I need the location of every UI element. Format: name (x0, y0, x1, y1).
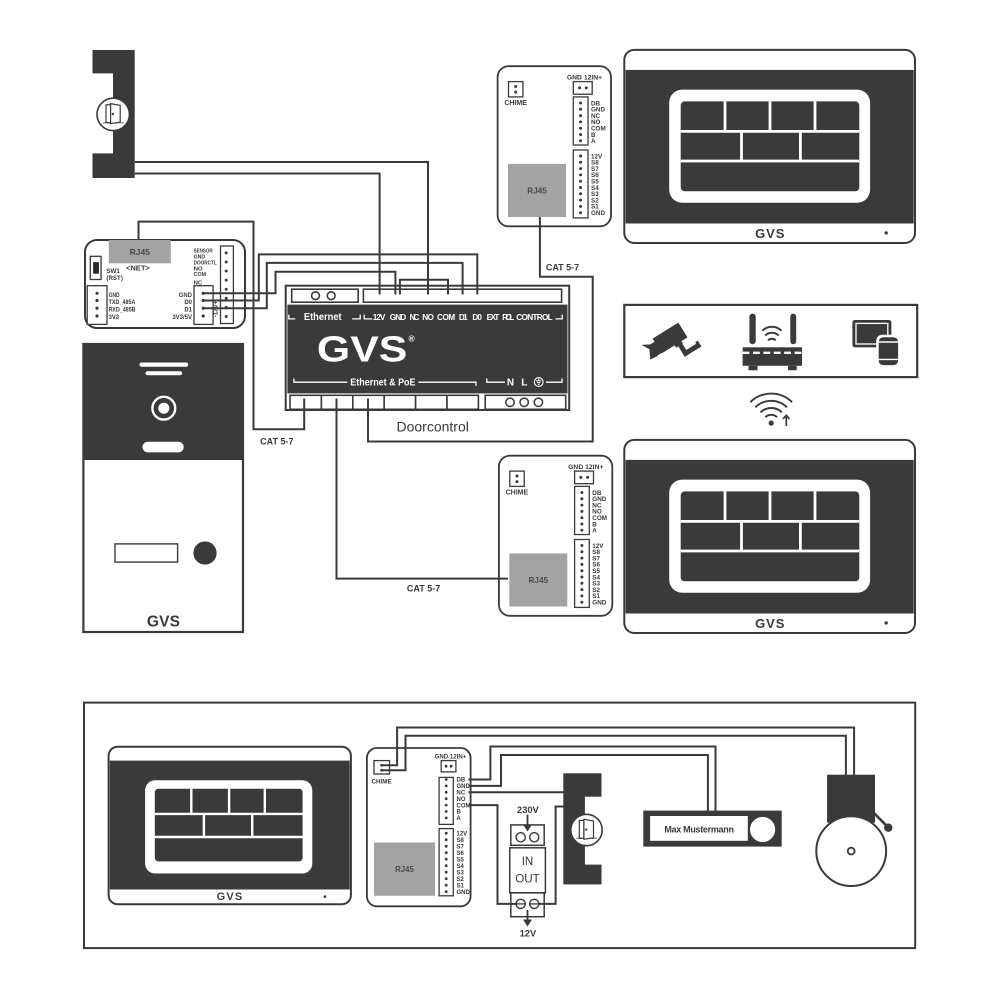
svg-text:ROL: ROL (502, 313, 514, 322)
svg-text:GND 12IN+: GND 12IN+ (567, 75, 602, 82)
svg-text:GVS: GVS (755, 616, 785, 631)
svg-text:RJ45: RJ45 (529, 576, 549, 585)
svg-text:GND: GND (179, 293, 193, 299)
svg-text:GND 12IN+: GND 12IN+ (435, 753, 467, 760)
svg-text:S4: S4 (457, 864, 465, 870)
svg-text:RJ45: RJ45 (130, 247, 151, 257)
svg-text:GVS: GVS (317, 330, 407, 370)
svg-text:COM: COM (457, 803, 471, 809)
svg-text:230V: 230V (517, 805, 540, 815)
svg-text:A: A (457, 816, 462, 822)
svg-text:D0: D0 (472, 313, 482, 322)
svg-text:COM: COM (194, 272, 207, 278)
svg-text:D1: D1 (459, 313, 468, 322)
svg-text:GND: GND (109, 293, 121, 299)
svg-text:S5: S5 (457, 857, 465, 863)
svg-text:GND: GND (457, 890, 471, 896)
svg-text:GVS: GVS (217, 891, 244, 903)
svg-text:CAT 5-7: CAT 5-7 (260, 436, 293, 446)
svg-text:GND: GND (591, 210, 605, 217)
svg-text:Max Mustermann: Max Mustermann (664, 825, 733, 835)
svg-text:N: N (507, 378, 514, 389)
svg-text:GVS: GVS (147, 614, 180, 631)
svg-text:Ethernet & PoE: Ethernet & PoE (350, 378, 415, 389)
svg-text:OUT: OUT (515, 873, 539, 886)
svg-text:RXD_485B: RXD_485B (109, 307, 136, 313)
svg-text:S1: S1 (457, 883, 465, 889)
svg-text:3V3: 3V3 (109, 315, 120, 321)
svg-text:<NET>: <NET> (126, 264, 150, 273)
svg-text:D0: D0 (184, 300, 192, 306)
svg-text:RJ45: RJ45 (395, 865, 414, 874)
svg-text:B: B (457, 810, 462, 816)
svg-text:DOORCTL: DOORCTL (194, 260, 218, 266)
svg-text:GND: GND (592, 600, 606, 607)
svg-text:3V3/5V: 3V3/5V (172, 315, 192, 321)
svg-text:L: L (521, 378, 527, 389)
svg-text:NC: NC (410, 313, 420, 322)
svg-text:NC: NC (457, 791, 466, 797)
svg-text:A: A (591, 138, 596, 145)
svg-text:CHIME: CHIME (504, 100, 527, 107)
svg-text:Ethernet: Ethernet (304, 312, 342, 323)
svg-text:GVS: GVS (755, 226, 785, 241)
svg-text:A: A (592, 528, 597, 535)
svg-text:IN: IN (522, 855, 534, 868)
svg-text:S3: S3 (457, 870, 465, 876)
svg-text:RJ45: RJ45 (527, 186, 547, 195)
svg-text:CONTROL: CONTROL (516, 313, 552, 322)
svg-text:S2: S2 (457, 877, 465, 883)
svg-text:CAT 5-7: CAT 5-7 (546, 263, 579, 273)
svg-text:SW1: SW1 (106, 268, 120, 275)
svg-text:D1: D1 (184, 307, 192, 313)
svg-text:12V: 12V (520, 928, 537, 938)
svg-text:COM: COM (437, 313, 455, 322)
svg-text:GND 12IN+: GND 12IN+ (568, 464, 603, 471)
svg-text:(RST): (RST) (106, 275, 123, 282)
svg-text:®: ® (409, 334, 416, 344)
svg-text:CHIME: CHIME (371, 779, 391, 786)
svg-text:CHIME: CHIME (506, 490, 529, 497)
svg-text:12V: 12V (457, 831, 468, 837)
svg-text:TXD_485A: TXD_485A (109, 300, 136, 306)
svg-text:S6: S6 (457, 851, 465, 857)
svg-text:CAT 5-7: CAT 5-7 (407, 583, 440, 593)
svg-text:NO: NO (422, 313, 434, 322)
svg-text:GND: GND (457, 784, 471, 790)
svg-text:12V: 12V (373, 313, 386, 322)
svg-text:S7: S7 (457, 844, 465, 850)
svg-text:NO: NO (457, 797, 466, 803)
svg-text:EXT: EXT (487, 313, 500, 322)
svg-text:Doorcontrol: Doorcontrol (397, 419, 469, 435)
svg-text:GND: GND (390, 313, 407, 322)
svg-text:S8: S8 (457, 838, 465, 844)
svg-text:DB: DB (457, 778, 466, 784)
